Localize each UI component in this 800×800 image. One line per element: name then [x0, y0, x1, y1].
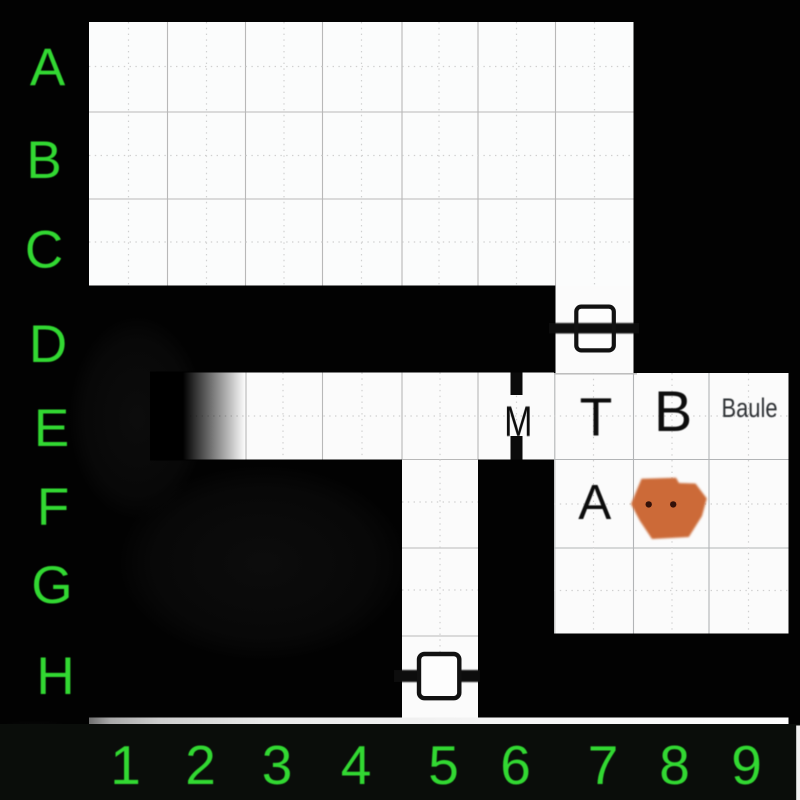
svg-text:F: F [37, 478, 69, 537]
svg-text:G: G [31, 556, 72, 615]
svg-text:H: H [36, 647, 74, 706]
svg-text:B: B [654, 380, 692, 444]
svg-text:7: 7 [588, 734, 619, 796]
svg-text:E: E [34, 399, 69, 458]
svg-text:9: 9 [731, 734, 762, 796]
svg-text:T: T [580, 389, 613, 448]
svg-text:A: A [578, 475, 611, 530]
svg-text:8: 8 [659, 734, 690, 796]
svg-text:A: A [30, 38, 66, 97]
svg-text:Baule: Baule [722, 393, 778, 423]
svg-text:4: 4 [341, 734, 372, 796]
svg-text:D: D [29, 315, 67, 374]
svg-text:C: C [25, 221, 63, 280]
svg-text:5: 5 [428, 734, 459, 796]
svg-text:2: 2 [185, 734, 216, 796]
svg-text:B: B [26, 131, 61, 190]
svg-text:6: 6 [500, 734, 531, 796]
svg-text:3: 3 [262, 734, 293, 796]
svg-text:1: 1 [110, 734, 141, 796]
svg-text:M: M [504, 398, 532, 445]
